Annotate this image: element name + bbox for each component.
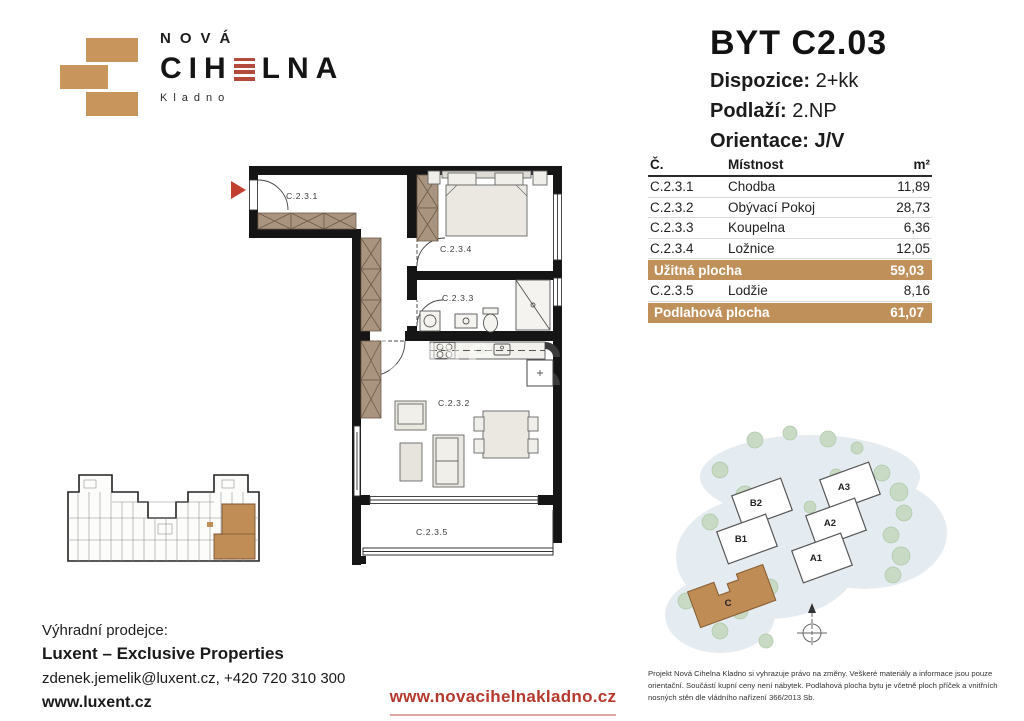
logo-nova-cihelna: NOVÁ CIH LNA Kladno <box>58 28 358 124</box>
room-label-chodba: C.2.3.1 <box>286 191 318 201</box>
orientace-line: Orientace: J/V <box>710 130 1010 153</box>
loggia <box>352 510 553 564</box>
table-row: C.2.3.4 Ložnice 12,05 <box>648 239 932 260</box>
building-label-a3: A3 <box>838 482 850 493</box>
room-label-loznice: C.2.3.4 <box>440 244 472 254</box>
seller-block: Výhradní prodejce: Luxent – Exclusive Pr… <box>42 622 345 712</box>
floor-overview <box>62 462 272 574</box>
unit-header: BYT C2.03 Dispozice: 2+kk Podlaží: 2.NP … <box>710 24 1010 153</box>
seller-intro: Výhradní prodejce: <box>42 622 345 639</box>
room-table: Č. Místnost m² C.2.3.1 Chodba 11,89 C.2.… <box>648 153 932 324</box>
table-row: C.2.3.3 Koupelna 6,36 <box>648 218 932 239</box>
seller-contact[interactable]: zdenek.jemelik@luxent.cz, +420 720 310 3… <box>42 670 345 687</box>
floor-plan: Luxe C.2.3.1 C.2.3.4 C.2.3.3 C.2.3.2 C.2… <box>228 158 572 573</box>
logo-city: Kladno <box>160 92 344 104</box>
brick-logo-icon <box>58 34 146 120</box>
room-label-obyvaci: C.2.3.2 <box>438 398 470 408</box>
building-label-a1: A1 <box>810 553 823 564</box>
building-label-b1: B1 <box>735 534 748 545</box>
logo-word-cihelna: CIH LNA <box>160 52 344 86</box>
seller-name: Luxent – Exclusive Properties <box>42 644 345 664</box>
table-row: C.2.3.5 Lodžie 8,16 <box>648 281 932 302</box>
disclaimer: Projekt Nová Cihelna Kladno si vyhrazuje… <box>648 668 1014 704</box>
building-label-b2: B2 <box>750 498 762 509</box>
room-label-lodzie: C.2.3.5 <box>416 527 448 537</box>
logo-word-nova: NOVÁ <box>160 30 344 47</box>
site-plan: B2 B1 A3 A2 A1 C <box>650 415 970 660</box>
table-row: C.2.3.2 Obývací Pokoj 28,73 <box>648 198 932 219</box>
table-header-row: Č. Místnost m² <box>648 153 932 177</box>
entry-door <box>250 180 289 210</box>
unit-title: BYT C2.03 <box>710 24 1010 63</box>
living-furniture <box>395 401 538 487</box>
table-row: C.2.3.1 Chodba 11,89 <box>648 177 932 198</box>
room-label-koupelna: C.2.3.3 <box>442 293 474 303</box>
red-e-bars-icon <box>234 58 255 81</box>
dispozice-line: Dispozice: 2+kk <box>710 70 1010 93</box>
floor-area-band: Podlahová plocha 61,07 <box>648 303 932 323</box>
project-url-wrap: www.novacihelnakladno.cz <box>358 687 648 716</box>
usable-area-band: Užitná plocha 59,03 <box>648 260 932 280</box>
project-url-link[interactable]: www.novacihelnakladno.cz <box>390 687 617 716</box>
seller-url-link[interactable]: www.luxent.cz <box>42 694 345 712</box>
building-label-c: C <box>725 598 732 609</box>
building-label-a2: A2 <box>824 518 836 529</box>
entry-arrow-icon <box>231 181 246 199</box>
apartment-sheet: NOVÁ CIH LNA Kladno BYT C2.03 Dispozice:… <box>0 0 1024 721</box>
podlazi-line: Podlaží: 2.NP <box>710 100 1010 123</box>
bedroom-furniture <box>428 171 547 236</box>
watermark: Luxe <box>378 325 495 381</box>
